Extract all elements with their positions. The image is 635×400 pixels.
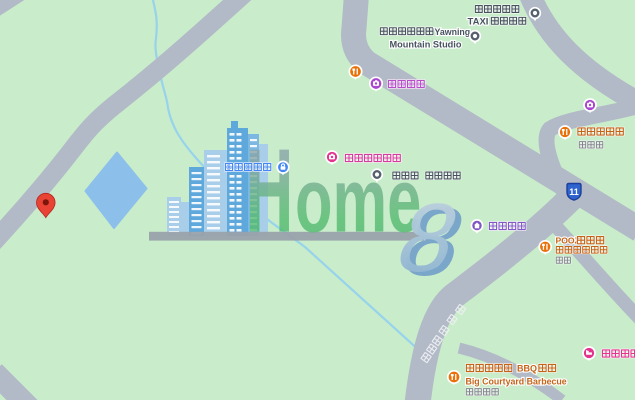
svg-text:BBQ: BBQ	[517, 363, 537, 373]
svg-text:Yawning: Yawning	[435, 27, 471, 37]
svg-text:POOZ: POOZ	[556, 236, 580, 246]
svg-text:TAXI: TAXI	[468, 16, 489, 27]
svg-text:11: 11	[569, 187, 579, 197]
svg-text:H: H	[246, 125, 294, 257]
svg-text:Big Courtyard Barbecue: Big Courtyard Barbecue	[466, 377, 567, 387]
svg-text:Mountain Studio: Mountain Studio	[390, 39, 462, 49]
